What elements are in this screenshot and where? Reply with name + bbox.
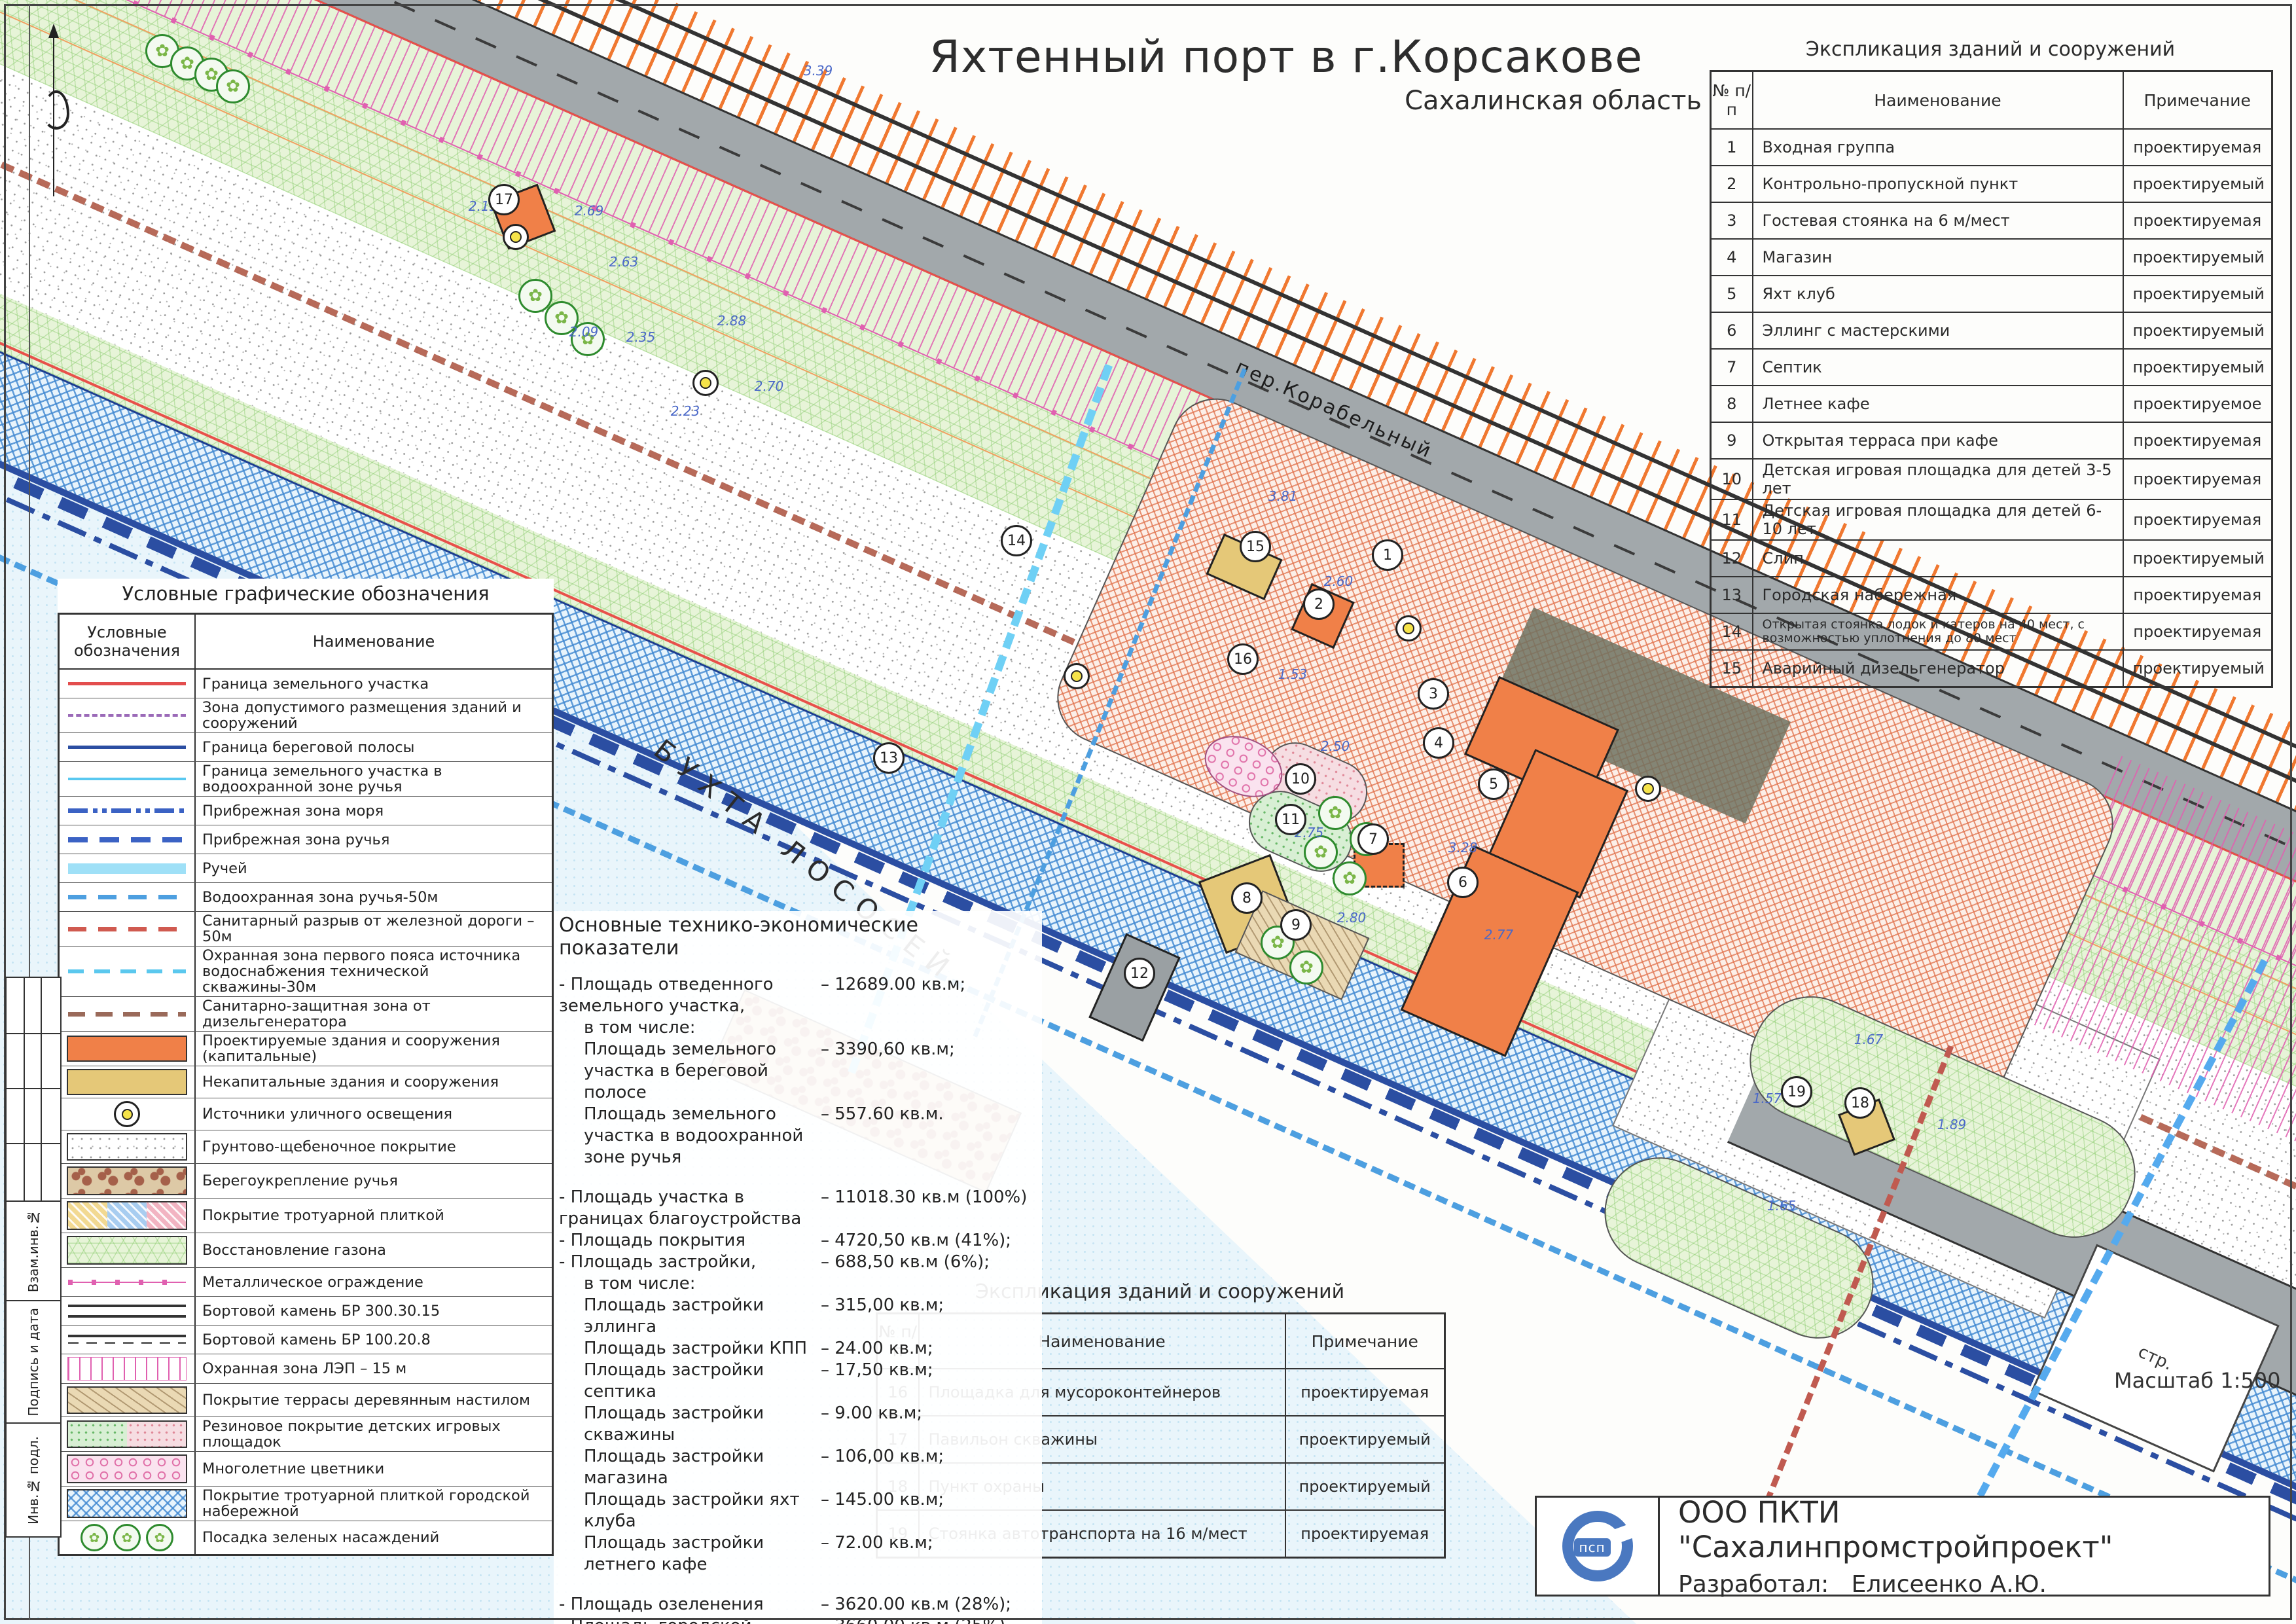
table-row: 13Городская набережнаяпроектируемая xyxy=(1711,577,2272,613)
legend-row: Граница земельного участка в водоохранно… xyxy=(60,762,552,797)
tech-line: Площадь застройки магазина– 106,00 кв.м; xyxy=(559,1446,1037,1489)
elevation-label: 2.69 xyxy=(575,203,604,219)
legend-row: Охранная зона первого пояса источника во… xyxy=(60,947,552,997)
map-marker-16: 16 xyxy=(1227,643,1259,675)
elevation-label: 2.77 xyxy=(1484,927,1514,943)
logo-text: псп xyxy=(1574,1538,1611,1557)
legend-row-label: Граница земельного участка в водоохранно… xyxy=(196,762,552,796)
developed-label: Разработал: xyxy=(1678,1571,1829,1598)
legend-row: Восстановление газона xyxy=(60,1233,552,1268)
elevation-label: 1.65 xyxy=(1767,1198,1797,1214)
tiles3-swatch-icon xyxy=(67,1201,187,1230)
legend-row: Бортовой камень БР 300.30.15 xyxy=(60,1297,552,1326)
tech-line: в том числе: xyxy=(559,1273,1037,1295)
legend-row: Грунтово-щебеночное покрытие xyxy=(60,1130,552,1164)
legend-row: Проектируемые здания и сооружения (капит… xyxy=(60,1032,552,1066)
legend-row: Покрытие тротуарной плиткой xyxy=(60,1199,552,1233)
map-marker-11: 11 xyxy=(1275,804,1306,835)
map-marker-12: 12 xyxy=(1124,958,1155,989)
legend-row-label: Металлическое ограждение xyxy=(196,1268,552,1296)
legend-row-label: Грунтово-щебеночное покрытие xyxy=(196,1130,552,1163)
map-marker-18: 18 xyxy=(1844,1087,1876,1119)
legend-row-label: Бортовой камень БР 100.20.8 xyxy=(196,1326,552,1354)
map-marker-1: 1 xyxy=(1372,539,1403,571)
fence-swatch-icon xyxy=(68,1279,186,1286)
elevation-label: 1.57 xyxy=(1753,1091,1782,1106)
legend-row: Источники уличного освещения xyxy=(60,1098,552,1130)
legend-rows: Граница земельного участкаЗона допустимо… xyxy=(60,670,552,1554)
legend-row: Металлическое ограждение xyxy=(60,1268,552,1297)
street-light-icon xyxy=(1635,776,1661,802)
legend-row: Бортовой камень БР 100.20.8 xyxy=(60,1326,552,1354)
title-block: Яхтенный порт в г.Корсакове Сахалинская … xyxy=(870,31,1702,116)
band-cyan-swatch-icon xyxy=(68,863,186,874)
tech-line: - Площадь застройки,– 688,50 кв.м (6%); xyxy=(559,1252,1037,1273)
legend-row: Санитарный разрыв от железной дороги – 5… xyxy=(60,912,552,947)
lamp-swatch-icon xyxy=(114,1101,140,1127)
legend-row: Санитарно-защитная зона от дизельгенерат… xyxy=(60,997,552,1032)
col-header-note: Примечание xyxy=(1285,1314,1445,1369)
legend-row-label: Источники уличного освещения xyxy=(196,1098,552,1130)
table-row: 9Открытая терраса при кафепроектируемая xyxy=(1711,422,2272,459)
developer-name: Елисеенко А.Ю. xyxy=(1852,1571,2047,1598)
street-light-icon xyxy=(692,370,719,396)
rubber-swatch-icon xyxy=(67,1420,187,1448)
stamp-label-podpis: Подпись и дата xyxy=(26,1308,41,1416)
tech-line: в том числе: xyxy=(559,1017,1037,1039)
stamp-label-vzam: Взам.инв.№ xyxy=(26,1210,41,1292)
stones-swatch-icon xyxy=(67,1166,187,1195)
tech-line: Площадь застройки септика– 17,50 кв.м; xyxy=(559,1360,1037,1403)
col-header-note: Примечание xyxy=(2123,71,2272,130)
company-logo: псп xyxy=(1537,1498,1660,1595)
map-marker-6: 6 xyxy=(1447,867,1479,898)
grass-swatch-icon xyxy=(67,1236,187,1265)
line-red-swatch-icon xyxy=(68,682,186,685)
page-subtitle: Сахалинская область xyxy=(870,86,1702,116)
tech-line: Площадь земельного участка в водоохранно… xyxy=(559,1104,1037,1168)
legend-row-label: Берегоукрепление ручья xyxy=(196,1164,552,1198)
map-marker-4: 4 xyxy=(1423,727,1454,759)
left-stamp-grid xyxy=(7,978,60,1202)
title-stamp: псп ООО ПКТИ "Сахалинпромстройпроект" Ра… xyxy=(1535,1496,2270,1597)
tech-line: - Площадь покрытия– 4720,50 кв.м (41%); xyxy=(559,1230,1037,1252)
legend-row: Покрытие тротуарной плиткой городской на… xyxy=(60,1487,552,1521)
legend-row-label: Проектируемые здания и сооружения (капит… xyxy=(196,1032,552,1066)
table-row: 6Эллинг с мастерскимипроектируемый xyxy=(1711,312,2272,349)
company-name: ООО ПКТИ "Сахалинпромстройпроект" xyxy=(1678,1495,2269,1564)
rect-orange-swatch-icon xyxy=(67,1036,187,1062)
table-row: 4Магазинпроектируемый xyxy=(1711,239,2272,276)
elevation-label: 2.80 xyxy=(1337,910,1367,926)
map-marker-10: 10 xyxy=(1285,763,1316,795)
map-marker-13: 13 xyxy=(873,742,905,774)
legend-row-label: Прибрежная зона моря xyxy=(196,797,552,825)
table-row: 3Гостевая стоянка на 6 м/местпроектируем… xyxy=(1711,202,2272,239)
tech-line: Площадь застройки КПП– 24.00 кв.м; xyxy=(559,1338,1037,1360)
dash-brown-swatch-icon xyxy=(68,1012,186,1017)
legend-row-label: Граница земельного участка xyxy=(196,670,552,698)
tech-line: Площадь застройки летнего кафе– 72.00 кв… xyxy=(559,1532,1037,1576)
legend-panel: Условные графические обозначения Условны… xyxy=(58,579,554,1556)
tree-icon xyxy=(216,69,250,103)
map-marker-17: 17 xyxy=(488,184,520,215)
map-marker-7: 7 xyxy=(1357,823,1389,855)
legend-row: Резиновое покрытие детских игровых площа… xyxy=(60,1417,552,1452)
left-stamp-column: Взам.инв.№ Подпись и дата Инв.№ подл. xyxy=(5,977,62,1538)
tech-line: - Площадь городской набережной– 3660,00 … xyxy=(559,1615,1037,1624)
legend-row: Граница береговой полосы xyxy=(60,733,552,762)
map-marker-8: 8 xyxy=(1231,882,1263,914)
legend-row-label: Прибрежная зона ручья xyxy=(196,825,552,854)
tech-lines: - Площадь отведенного земельного участка… xyxy=(559,974,1037,1624)
tech-line: Площадь застройки яхт клуба– 145.00 кв.м… xyxy=(559,1489,1037,1532)
trees-swatch-icon xyxy=(68,1524,186,1551)
explication-table-top: Экспликация зданий и сооружений № п/п На… xyxy=(1710,38,2271,688)
lep-swatch-icon xyxy=(67,1357,187,1380)
tech-line: Площадь застройки эллинга– 315,00 кв.м; xyxy=(559,1295,1037,1338)
elevation-label: 1.89 xyxy=(1937,1117,1967,1132)
legend-row-label: Некапитальные здания и сооружения xyxy=(196,1066,552,1098)
tech-indicators: Основные технико-экономические показател… xyxy=(554,911,1042,1624)
elevation-label: 2.88 xyxy=(717,313,747,329)
table-row: 1Входная группапроектируемая xyxy=(1711,129,2272,166)
tech-line: - Площадь отведенного земельного участка… xyxy=(559,974,1037,1017)
elevation-label: 2.50 xyxy=(1321,738,1350,754)
legend-row: Зона допустимого размещения зданий и соо… xyxy=(60,698,552,733)
map-marker-15: 15 xyxy=(1240,531,1271,562)
dash-red-swatch-icon xyxy=(68,927,186,931)
table-row: 2Контрольно-пропускной пунктпроектируемы… xyxy=(1711,166,2272,202)
legend-row-label: Граница береговой полосы xyxy=(196,733,552,761)
tech-line: Площадь земельного участка в береговой п… xyxy=(559,1039,1037,1104)
elevation-label: 2.63 xyxy=(609,254,639,270)
legend-row: Многолетние цветники xyxy=(60,1452,552,1487)
street-light-icon xyxy=(503,224,529,250)
developer-line: Разработал: Елисеенко А.Ю. xyxy=(1678,1571,2269,1598)
legend-row-label: Покрытие террасы деревянным настилом xyxy=(196,1384,552,1416)
dash-blue2-swatch-icon xyxy=(68,895,186,899)
deck-swatch-icon xyxy=(67,1386,187,1414)
stamp-label-inv: Инв.№ подл. xyxy=(26,1436,41,1525)
elevation-label: 2.60 xyxy=(1324,573,1354,589)
legend-col-name: Наименование xyxy=(196,615,552,668)
legend-row: Берегоукрепление ручья xyxy=(60,1164,552,1199)
legend-row: Охранная зона ЛЭП – 15 м xyxy=(60,1354,552,1384)
line-navy-swatch-icon xyxy=(68,746,186,749)
elevation-label: 2.70 xyxy=(755,378,784,394)
elevation-label: 3.81 xyxy=(1268,488,1298,504)
legend-row-label: Резиновое покрытие детских игровых площа… xyxy=(196,1417,552,1451)
page-title: Яхтенный порт в г.Корсакове xyxy=(870,31,1702,83)
dash-cyan-swatch-icon xyxy=(68,969,186,973)
elevation-label: 3.39 xyxy=(804,63,833,79)
legend-row-label: Восстановление газона xyxy=(196,1233,552,1267)
table-row: 8Летнее кафепроектируемое xyxy=(1711,386,2272,422)
table-row: 12Слиппроектируемый xyxy=(1711,540,2272,577)
rect-tan-swatch-icon xyxy=(67,1069,187,1095)
legend-row: Ручей xyxy=(60,854,552,883)
tech-line: - Площадь озеленения– 3620.00 кв.м (28%)… xyxy=(559,1594,1037,1615)
legend-row: Граница земельного участка xyxy=(60,670,552,698)
legend-row-label: Зона допустимого размещения зданий и соо… xyxy=(196,698,552,732)
legend-row-label: Охранная зона первого пояса источника во… xyxy=(196,947,552,996)
stipple-swatch-icon xyxy=(67,1133,187,1161)
flowers-swatch-icon xyxy=(67,1454,187,1483)
legend-row-label: Охранная зона ЛЭП – 15 м xyxy=(196,1354,552,1383)
legend-row-label: Водоохранная зона ручья-50м xyxy=(196,883,552,911)
legend-row: Прибрежная зона ручья xyxy=(60,825,552,854)
legend-row-label: Покрытие тротуарной плиткой xyxy=(196,1199,552,1233)
scale-label: Масштаб 1:500 xyxy=(2114,1368,2280,1393)
street-light-icon xyxy=(1064,663,1090,689)
dashdot-blue-swatch-icon xyxy=(68,808,186,813)
legend-row: Прибрежная зона моря xyxy=(60,797,552,825)
legend-row-label: Бортовой камень БР 300.30.15 xyxy=(196,1297,552,1325)
legend-title: Условные графические обозначения xyxy=(58,579,554,613)
tech-line: Площадь застройки скважины– 9.00 кв.м; xyxy=(559,1403,1037,1446)
legend-col-symbols: Условные обозначения xyxy=(60,615,196,668)
col-header-name: Наименование xyxy=(1753,71,2123,130)
north-arrow xyxy=(41,26,67,196)
elevation-label: 1.67 xyxy=(1854,1032,1884,1047)
table-row: 14Открытая стоянка лодок и катеров на 40… xyxy=(1711,613,2272,650)
dash-purple-swatch-icon xyxy=(68,714,186,717)
elevation-label: 1.53 xyxy=(1278,666,1308,682)
drawing-sheet: пер.Корабельный стр. xyxy=(0,0,2296,1624)
map-marker-2: 2 xyxy=(1303,588,1335,620)
curb300-swatch-icon xyxy=(68,1305,186,1318)
map-marker-14: 14 xyxy=(1001,525,1032,556)
legend-row-label: Ручей xyxy=(196,854,552,882)
legend-row-label: Санитарный разрыв от железной дороги – 5… xyxy=(196,912,552,946)
legend-row-label: Покрытие тротуарной плиткой городской на… xyxy=(196,1487,552,1521)
tech-line: - Площадь участка в границах благоустрой… xyxy=(559,1187,1037,1230)
line-cyan-swatch-icon xyxy=(68,778,186,780)
dash-blue-swatch-icon xyxy=(68,837,186,842)
curb100-swatch-icon xyxy=(68,1335,186,1345)
table-row: 11Детская игровая площадка для детей 6-1… xyxy=(1711,499,2272,540)
legend-row-label: Посадка зеленых насаждений xyxy=(196,1521,552,1554)
table-row: 7Септикпроектируемый xyxy=(1711,349,2272,386)
table-row: 10Детская игровая площадка для детей 3-5… xyxy=(1711,459,2272,499)
map-marker-3: 3 xyxy=(1418,678,1449,710)
map-marker-9: 9 xyxy=(1280,909,1312,941)
elevation-label: 2.23 xyxy=(671,403,700,419)
tree-icon xyxy=(1333,861,1367,895)
table-row: 15Аварийный дизельгенераторпроектируемый xyxy=(1711,650,2272,687)
legend-row: Покрытие террасы деревянным настилом xyxy=(60,1384,552,1417)
tech-title: Основные технико-экономические показател… xyxy=(559,914,1037,960)
legend-row: Некапитальные здания и сооружения xyxy=(60,1066,552,1098)
elevation-label: 2.09 xyxy=(569,324,599,340)
street-light-icon xyxy=(1395,615,1422,641)
explication-top-title: Экспликация зданий и сооружений xyxy=(1710,38,2271,61)
map-marker-19: 19 xyxy=(1781,1076,1812,1108)
table-row: 5Яхт клубпроектируемый xyxy=(1711,276,2272,312)
legend-row: Посадка зеленых насаждений xyxy=(60,1521,552,1554)
tree-icon xyxy=(1289,950,1323,984)
explication-top-body: 1Входная группапроектируемая2Контрольно-… xyxy=(1711,129,2272,687)
emb-swatch-icon xyxy=(67,1489,187,1518)
map-marker-5: 5 xyxy=(1478,768,1509,800)
legend-row: Водоохранная зона ручья-50м xyxy=(60,883,552,912)
legend-row-label: Санитарно-защитная зона от дизельгенерат… xyxy=(196,997,552,1031)
elevation-label: 3.28 xyxy=(1448,840,1478,856)
legend-row-label: Многолетние цветники xyxy=(196,1452,552,1486)
col-header-num: № п/п xyxy=(1711,71,1753,130)
elevation-label: 2.35 xyxy=(626,329,656,345)
